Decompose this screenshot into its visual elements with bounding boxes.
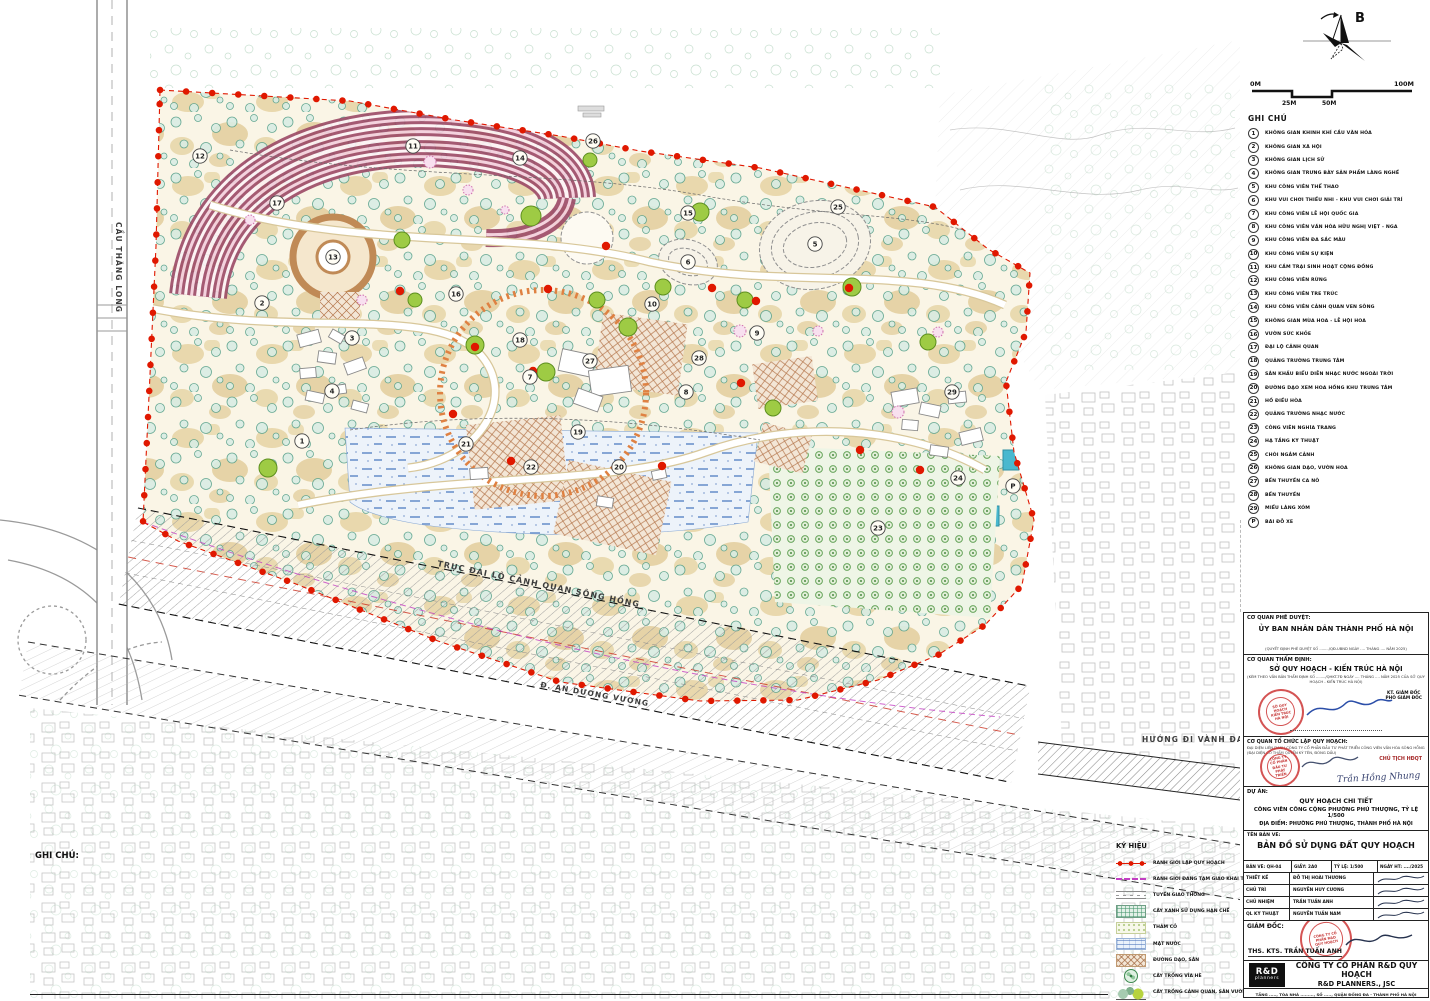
plan-marker: 14 [513, 151, 527, 165]
legend-item: 6 KHU VUI CHƠI THIẾU NHI - KHU VUI CHƠI … [1248, 194, 1428, 207]
legend-item-number: 5 [1248, 182, 1259, 193]
legend-item-number: P [1248, 517, 1259, 528]
legend-item-label: MIẾU LÀNG XÓM [1265, 506, 1310, 511]
plan-marker: 20 [612, 460, 626, 474]
north-letter: B [1355, 11, 1365, 26]
legend-list: 1 KHÔNG GIAN KHINH KHÍ CẦU VĂN HÓA 2 KHÔ… [1248, 127, 1428, 529]
approval-decision-note: (QUYẾT ĐỊNH PHÊ DUYỆT SỐ ......../QĐ-UBN… [1247, 647, 1425, 652]
project-section: DỰ ÁN: QUY HOẠCH CHI TIẾT CÔNG VIÊN CÔNG… [1244, 787, 1428, 831]
legend-item: 21 HỒ ĐIỀU HÒA [1248, 395, 1428, 408]
legend-item-number: 24 [1248, 436, 1259, 447]
legend-item: 17 ĐẠI LỘ CẢNH QUAN [1248, 341, 1428, 354]
plan-marker: P [1006, 479, 1020, 493]
svg-text:17: 17 [272, 200, 282, 208]
legend-item-number: 28 [1248, 490, 1259, 501]
plan-marker: 27 [583, 354, 597, 368]
svg-text:6: 6 [686, 259, 691, 267]
scale-0: 0M [1250, 80, 1261, 88]
crew-signature [1374, 909, 1428, 920]
agency-stamp-text: SỞ QUY HOẠCH KIẾN TRÚC HÀ NỘI [1264, 695, 1298, 729]
symbol-label: RANH GIỚI LẬP QUY HOẠCH [1153, 861, 1225, 866]
project-line3: ĐỊA ĐIỂM: PHƯỜNG PHÚ THƯỢNG, THÀNH PHỐ H… [1247, 821, 1425, 827]
organizer-signature [1300, 753, 1360, 773]
appraisal-name-line [1290, 725, 1382, 731]
svg-text:10: 10 [647, 301, 657, 309]
svg-text:P: P [1010, 483, 1015, 491]
plan-marker: 1 [295, 434, 309, 448]
symbol-item: RANH GIỚI ĐANG TẠM GIAO KHAI THÁC CỘNG Đ… [1116, 871, 1240, 887]
symbol-label: CÂY XANH SỬ DỤNG HẠN CHẾ [1153, 909, 1230, 914]
symbol-swatch [1116, 954, 1146, 967]
legend-item-label: KHÔNG GIAN LỊCH SỬ [1265, 158, 1324, 163]
legend-item-number: 16 [1248, 329, 1259, 340]
plan-marker: 7 [523, 370, 537, 384]
legend-item-label: KHU CÔNG VIÊN TRE TRÚC [1265, 292, 1338, 297]
symbol-item: CÂY XANH SỬ DỤNG HẠN CHẾ [1116, 904, 1240, 920]
svg-text:16: 16 [451, 291, 461, 299]
crew-role: CHỦ TRÌ [1244, 885, 1290, 896]
legend-item-label: KHÔNG GIAN DẠO, VƯỜN HOA [1265, 466, 1348, 471]
notes-block: GHI CHÚ: [35, 851, 271, 864]
svg-text:12: 12 [195, 153, 205, 161]
legend-item-number: 29 [1248, 503, 1259, 514]
plan-marker: 6 [681, 255, 695, 269]
legend-item-number: 19 [1248, 369, 1259, 380]
svg-text:23: 23 [873, 525, 883, 533]
plan-marker: 3 [345, 331, 359, 345]
investor-stamp: CÔNG TY CỔ PHẦN ĐẦU TƯ PHÁT TRIỂN [1260, 747, 1300, 787]
legend-item-label: KHÔNG GIAN XÃ HỘI [1265, 145, 1322, 150]
svg-text:5: 5 [813, 241, 818, 249]
symbol-swatch [1116, 860, 1146, 867]
legend-item-number: 12 [1248, 275, 1259, 286]
symbol-label: TUYẾN GIAO THÔNG [1153, 893, 1205, 898]
director-signature [1344, 929, 1414, 951]
legend-item: 10 KHU CÔNG VIÊN SỰ KIỆN [1248, 248, 1428, 261]
bridge-label: CẦU THĂNG LONG [114, 222, 124, 313]
appraisal-agency-name: SỞ QUY HOẠCH - KIẾN TRÚC HÀ NỘI [1247, 665, 1425, 673]
symbol-swatch [1116, 938, 1146, 950]
approving-agency-label: CƠ QUAN PHÊ DUYỆT: [1247, 615, 1425, 621]
symbol-item: MẶT NƯỚC [1116, 936, 1240, 952]
crew-name: NGUYỄN TUẤN NAM [1290, 909, 1374, 920]
legend-item: 8 KHU CÔNG VIÊN VĂN HÓA HỮU NGHỊ VIỆT - … [1248, 221, 1428, 234]
svg-text:19: 19 [573, 429, 583, 437]
plan-marker: 28 [692, 351, 706, 365]
svg-text:22: 22 [526, 464, 536, 472]
north-arrow: B [1303, 3, 1391, 65]
crew-name: TRẦN TUẤN ANH [1290, 897, 1374, 908]
crew-signature [1374, 873, 1428, 884]
sheet-border-bottom [30, 994, 1108, 995]
svg-text:27: 27 [585, 358, 595, 366]
ring-road-label: HƯỚNG ĐI VÀNH ĐAI 2 [1142, 735, 1240, 744]
plan-marker: 29 [945, 385, 959, 399]
organizer-label: CƠ QUAN TỔ CHỨC LẬP QUY HOẠCH: [1247, 739, 1425, 745]
legend-item-number: 9 [1248, 235, 1259, 246]
legend-item-number: 17 [1248, 342, 1259, 353]
legend-item: 2 KHÔNG GIAN XÃ HỘI [1248, 140, 1428, 153]
notes-title: GHI CHÚ: [35, 851, 271, 861]
project-line1: QUY HOẠCH CHI TIẾT [1247, 798, 1425, 805]
legend-item-number: 26 [1248, 463, 1259, 474]
legend-item-number: 25 [1248, 450, 1259, 461]
legend-item-label: KHU CÔNG VIÊN THỂ THAO [1265, 185, 1339, 190]
symbol-swatch [1116, 986, 1146, 1000]
legend-item-number: 10 [1248, 249, 1259, 260]
organizer-sign-title: CHỦ TỊCH HĐQT [1379, 757, 1422, 762]
legend-item-label: QUẢNG TRƯỜNG TRUNG TÂM [1265, 359, 1344, 364]
legend-item-label: CÔNG VIÊN NGHĨA TRANG [1265, 426, 1336, 431]
crew-row: CHỦ NHIỆM TRẦN TUẤN ANH [1244, 897, 1428, 909]
legend-item-number: 1 [1248, 128, 1259, 139]
project-label: DỰ ÁN: [1247, 789, 1425, 795]
legend-item: 20 ĐƯỜNG DẠO XEM HOA HỒNG KHU TRUNG TÂM [1248, 381, 1428, 394]
symbol-list: RANH GIỚI LẬP QUY HOẠCH RANH GIỚI ĐANG T… [1116, 855, 1240, 1001]
legend-item: 14 KHU CÔNG VIÊN CẢNH QUAN VEN SÔNG [1248, 301, 1428, 314]
plan-marker: 22 [524, 460, 538, 474]
appraisal-note: (KÈM THEO VĂN BẢN THẨM ĐỊNH SỐ ......../… [1247, 675, 1425, 685]
director-name: THS. KTS. TRẦN TUẤN ANH [1248, 948, 1342, 957]
completion-date: NGÀY HT: ..../2025 [1378, 861, 1428, 872]
plan-marker: 17 [270, 196, 284, 210]
legend-item-number: 13 [1248, 289, 1259, 300]
legend-item-number: 20 [1248, 383, 1259, 394]
svg-text:9: 9 [755, 330, 760, 338]
legend-item: 16 VƯỜN SỨC KHỎE [1248, 328, 1428, 341]
legend-item: 4 KHÔNG GIAN TRƯNG BÀY SẢN PHẨM LÀNG NGH… [1248, 167, 1428, 180]
appraisal-sign-title2: PHÓ GIÁM ĐỐC [1385, 696, 1422, 701]
svg-text:26: 26 [588, 138, 598, 146]
symbol-legend: KÝ HIỆU RANH GIỚI LẬP QUY HOẠCH RANH GIỚ… [1116, 842, 1240, 1001]
legend-item-number: 14 [1248, 302, 1259, 313]
svg-text:28: 28 [694, 355, 704, 363]
plan-marker: 15 [681, 206, 695, 220]
crew-signature [1374, 897, 1428, 908]
legend-item-number: 18 [1248, 356, 1259, 367]
symbol-item: RANH GIỚI LẬP QUY HOẠCH [1116, 855, 1240, 871]
crew-name: NGUYỄN HUY CƯƠNG [1290, 885, 1374, 896]
symbol-swatch [1124, 969, 1138, 983]
company-name-en: R&D PLANNERS., JSC [1288, 980, 1425, 988]
company-address-section: TẦNG ....., TÒA NHÀ ........., SỐ .....,… [1244, 989, 1428, 999]
legend-item-label: BẾN THUYỀN [1265, 493, 1300, 498]
plan-marker: 24 [951, 471, 965, 485]
paper-size: GIẤY: 2A0 [1292, 861, 1332, 872]
plan-marker: 12 [193, 149, 207, 163]
legend-item-number: 4 [1248, 168, 1259, 179]
drawing-name-section: TÊN BẢN VẼ: BẢN ĐỒ SỬ DỤNG ĐẤT QUY HOẠCH [1244, 831, 1428, 861]
legend-item: 5 KHU CÔNG VIÊN THỂ THAO [1248, 181, 1428, 194]
legend-item-label: KHU CẮM TRẠI SINH HOẠT CỘNG ĐỒNG [1265, 265, 1373, 270]
plan-marker: 18 [513, 333, 527, 347]
legend-item: P BÃI ĐỖ XE [1248, 515, 1428, 528]
legend-item-number: 3 [1248, 155, 1259, 166]
investor-stamp-text: CÔNG TY CỔ PHẦN ĐẦU TƯ PHÁT TRIỂN [1265, 752, 1294, 781]
legend-item-label: BẾN THUYỀN CA NÔ [1265, 479, 1319, 484]
crew-role: QL KỸ THUẬT [1244, 909, 1290, 920]
drawing-name-label: TÊN BẢN VẼ: [1247, 833, 1425, 838]
project-line2: CÔNG VIÊN CÔNG CỘNG PHƯỜNG PHÚ THƯỢNG, T… [1247, 807, 1425, 819]
svg-text:7: 7 [528, 374, 533, 382]
legend-item-label: BÃI ĐỖ XE [1265, 520, 1293, 525]
legend-item-number: 11 [1248, 262, 1259, 273]
fold-mark [1240, 520, 1241, 612]
legend-item-label: QUẢNG TRƯỜNG NHẠC NƯỚC [1265, 412, 1345, 417]
symbol-label: CÂY TRỒNG CẢNH QUAN, SÂN VƯỜN [1153, 990, 1246, 995]
approving-agency-name: ỦY BAN NHÂN DÂN THÀNH PHỐ HÀ NỘI [1247, 625, 1425, 633]
legend-item: 7 KHU CÔNG VIÊN LỄ HỘI QUỐC GIA [1248, 207, 1428, 220]
legend-item-label: KHU CÔNG VIÊN ĐA SẮC MÀU [1265, 238, 1346, 243]
crew-row: QL KỸ THUẬT NGUYỄN TUẤN NAM [1244, 909, 1428, 921]
legend-item-label: KHU CÔNG VIÊN RỪNG [1265, 278, 1327, 283]
plan-marker: 21 [459, 437, 473, 451]
legend-item: 13 KHU CÔNG VIÊN TRE TRÚC [1248, 288, 1428, 301]
drawing-info-row: BẢN VẼ: QH-04 GIẤY: 2A0 TỶ LỆ: 1/500 NGÀ… [1244, 861, 1428, 873]
drawing-name: BẢN ĐỒ SỬ DỤNG ĐẤT QUY HOẠCH [1247, 841, 1425, 850]
plan-marker: 5 [808, 237, 822, 251]
legend-item: 3 KHÔNG GIAN LỊCH SỬ [1248, 154, 1428, 167]
symbol-item: ĐƯỜNG DẠO, SÂN [1116, 952, 1240, 968]
legend-item-label: KHU VUI CHƠI THIẾU NHI - KHU VUI CHƠI GI… [1265, 198, 1403, 203]
legend-item-label: KHÔNG GIAN KHINH KHÍ CẦU VĂN HÓA [1265, 131, 1372, 136]
symbol-item: TUYẾN GIAO THÔNG [1116, 887, 1240, 903]
legend-item-label: KHU CÔNG VIÊN CẢNH QUAN VEN SÔNG [1265, 305, 1375, 310]
symbol-label: THẢM CỎ [1153, 925, 1177, 930]
crew-rows: THIẾT KẾ ĐỖ THỊ HOÀI THƯƠNG CHỦ TRÌ NGUY… [1244, 873, 1428, 921]
legend-item-label: KHU CÔNG VIÊN VĂN HÓA HỮU NGHỊ VIỆT - NG… [1265, 225, 1398, 230]
svg-text:11: 11 [408, 143, 418, 151]
company-section: R&D planners CÔNG TY CỔ PHẦN R&D QUY HOẠ… [1244, 961, 1428, 989]
legend-item: 28 BẾN THUYỀN [1248, 489, 1428, 502]
legend-item-label: KHÔNG GIAN TRƯNG BÀY SẢN PHẨM LÀNG NGHỀ [1265, 171, 1399, 176]
svg-text:15: 15 [683, 210, 693, 218]
crew-name: ĐỖ THỊ HOÀI THƯƠNG [1290, 873, 1374, 884]
symbol-item: THẢM CỎ [1116, 920, 1240, 936]
plan-marker: 10 [645, 297, 659, 311]
svg-text:2: 2 [260, 300, 265, 308]
legend-item-label: VƯỜN SỨC KHỎE [1265, 332, 1311, 337]
pier-structure [578, 106, 604, 117]
svg-text:1: 1 [300, 438, 305, 446]
legend-item: 11 KHU CẮM TRẠI SINH HOẠT CỘNG ĐỒNG [1248, 261, 1428, 274]
svg-text:24: 24 [953, 475, 963, 483]
svg-text:4: 4 [330, 388, 335, 396]
legend-item-number: 23 [1248, 423, 1259, 434]
legend-item-number: 8 [1248, 222, 1259, 233]
appraisal-agency-label: CƠ QUAN THẨM ĐỊNH: [1247, 657, 1425, 663]
crew-signature [1374, 885, 1428, 896]
plan-marker: 11 [406, 139, 420, 153]
legend-item: 25 CHÒI NGẮM CẢNH [1248, 448, 1428, 461]
legend-item-number: 22 [1248, 409, 1259, 420]
legend-item-number: 15 [1248, 316, 1259, 327]
scale-100: 100M [1394, 80, 1414, 88]
legend-item-number: 7 [1248, 209, 1259, 220]
legend-item: 29 MIẾU LÀNG XÓM [1248, 502, 1428, 515]
legend-item: 12 KHU CÔNG VIÊN RỪNG [1248, 274, 1428, 287]
legend-item: 9 KHU CÔNG VIÊN ĐA SẮC MÀU [1248, 234, 1428, 247]
scale-bar: 0M 100M 25M 50M [1250, 80, 1414, 114]
symbol-label: ĐƯỜNG DẠO, SÂN [1153, 958, 1199, 963]
appraisal-agency-section: CƠ QUAN THẨM ĐỊNH: SỞ QUY HOẠCH - KIẾN T… [1244, 655, 1428, 737]
plan-marker: 16 [449, 287, 463, 301]
numbered-legend: GHI CHÚ 1 KHÔNG GIAN KHINH KHÍ CẦU VĂN H… [1248, 114, 1428, 529]
sheet-number: BẢN VẼ: QH-04 [1244, 861, 1292, 872]
crew-role: CHỦ NHIỆM [1244, 897, 1290, 908]
symbol-legend-title: KÝ HIỆU [1116, 842, 1240, 850]
company-name-vi: CÔNG TY CỔ PHẦN R&D QUY HOẠCH [1288, 961, 1425, 979]
approving-agency-section: CƠ QUAN PHÊ DUYỆT: ỦY BAN NHÂN DÂN THÀNH… [1244, 613, 1428, 655]
svg-text:29: 29 [947, 389, 957, 397]
svg-text:8: 8 [684, 389, 689, 397]
legend-item-label: ĐƯỜNG DẠO XEM HOA HỒNG KHU TRUNG TÂM [1265, 386, 1392, 391]
legend-item-label: KHU CÔNG VIÊN SỰ KIỆN [1265, 252, 1334, 257]
legend-title: GHI CHÚ [1248, 114, 1428, 123]
svg-text:25: 25 [833, 204, 843, 212]
legend-item: 26 KHÔNG GIAN DẠO, VƯỜN HOA [1248, 462, 1428, 475]
legend-item-number: 21 [1248, 396, 1259, 407]
svg-text:20: 20 [614, 464, 624, 472]
svg-text:3: 3 [350, 335, 355, 343]
symbol-item: CÂY TRỒNG CẢNH QUAN, SÂN VƯỜN [1116, 985, 1240, 1001]
legend-item-label: KHÔNG GIAN MÙA HOA - LỄ HỘI HOA [1265, 319, 1366, 324]
company-address: TẦNG ....., TÒA NHÀ ........., SỐ .....,… [1256, 992, 1417, 997]
legend-item: 15 KHÔNG GIAN MÙA HOA - LỄ HỘI HOA [1248, 314, 1428, 327]
title-block: CƠ QUAN PHÊ DUYỆT: ỦY BAN NHÂN DÂN THÀNH… [1243, 612, 1429, 998]
appraisal-signature [1304, 695, 1394, 721]
crew-row: THIẾT KẾ ĐỖ THỊ HOÀI THƯƠNG [1244, 873, 1428, 885]
symbol-swatch [1116, 922, 1146, 934]
drawing-sheet: CẦU THĂNG LONG TRỤC ĐẠI LỘ CẢNH QUAN SÔN… [0, 0, 1430, 999]
plan-marker: 23 [871, 521, 885, 535]
organizer-section: CƠ QUAN TỔ CHỨC LẬP QUY HOẠCH: ĐẠI DIỆN … [1244, 737, 1428, 787]
legend-item-number: 2 [1248, 142, 1259, 153]
legend-item-number: 27 [1248, 476, 1259, 487]
legend-item: 23 CÔNG VIÊN NGHĨA TRANG [1248, 422, 1428, 435]
symbol-swatch [1116, 905, 1146, 918]
urban-fabric-east [1045, 372, 1240, 770]
director-section: GIÁM ĐỐC: CÔNG TY CỔ PHẦN R&D QUY HOẠCH … [1244, 921, 1428, 961]
legend-item-label: ĐẠI LỘ CẢNH QUAN [1265, 345, 1319, 350]
site-plan-svg: CẦU THĂNG LONG TRỤC ĐẠI LỘ CẢNH QUAN SÔN… [0, 0, 1240, 999]
legend-item: 22 QUẢNG TRƯỜNG NHẠC NƯỚC [1248, 408, 1428, 421]
plan-marker: 19 [571, 425, 585, 439]
svg-text:18: 18 [515, 337, 525, 345]
plan-marker: 13 [326, 250, 340, 264]
legend-item: 1 KHÔNG GIAN KHINH KHÍ CẦU VĂN HÓA [1248, 127, 1428, 140]
svg-text:14: 14 [515, 155, 525, 163]
plan-marker: 9 [750, 326, 764, 340]
legend-item-label: KHU CÔNG VIÊN LỄ HỘI QUỐC GIA [1265, 212, 1358, 217]
legend-item-label: SÂN KHẤU BIỂU DIỄN NHẠC NƯỚC NGOÀI TRỜI [1265, 372, 1393, 377]
legend-item-label: HỒ ĐIỀU HÒA [1265, 399, 1302, 404]
legend-item: 18 QUẢNG TRƯỜNG TRUNG TÂM [1248, 355, 1428, 368]
crew-role: THIẾT KẾ [1244, 873, 1290, 884]
svg-text:13: 13 [328, 254, 338, 262]
plan-marker: 8 [679, 385, 693, 399]
scale-50: 50M [1322, 100, 1336, 107]
symbol-label: MẶT NƯỚC [1153, 942, 1181, 947]
legend-item: 27 BẾN THUYỀN CA NÔ [1248, 475, 1428, 488]
symbol-item: CÂY TRỒNG VỈA HÈ [1116, 968, 1240, 984]
legend-item-label: CHÒI NGẮM CẢNH [1265, 453, 1314, 458]
svg-text:21: 21 [461, 441, 471, 449]
symbol-swatch [1116, 891, 1146, 899]
company-logo-bottom: planners [1255, 977, 1279, 982]
plan-marker: 25 [831, 200, 845, 214]
symbol-swatch [1116, 878, 1146, 880]
legend-item-label: HẠ TẦNG KỸ THUẬT [1265, 439, 1319, 444]
drawing-scale: TỶ LỆ: 1/500 [1332, 861, 1378, 872]
plan-marker: 2 [255, 296, 269, 310]
crew-row: CHỦ TRÌ NGUYỄN HUY CƯƠNG [1244, 885, 1428, 897]
legend-item: 19 SÂN KHẤU BIỂU DIỄN NHẠC NƯỚC NGOÀI TR… [1248, 368, 1428, 381]
legend-item: 24 HẠ TẦNG KỸ THUẬT [1248, 435, 1428, 448]
plan-marker: 4 [325, 384, 339, 398]
scale-25: 25M [1282, 100, 1296, 107]
company-logo: R&D planners [1249, 963, 1285, 987]
legend-item-number: 6 [1248, 195, 1259, 206]
plan-marker: 26 [586, 134, 600, 148]
symbol-label: CÂY TRỒNG VỈA HÈ [1153, 974, 1202, 979]
